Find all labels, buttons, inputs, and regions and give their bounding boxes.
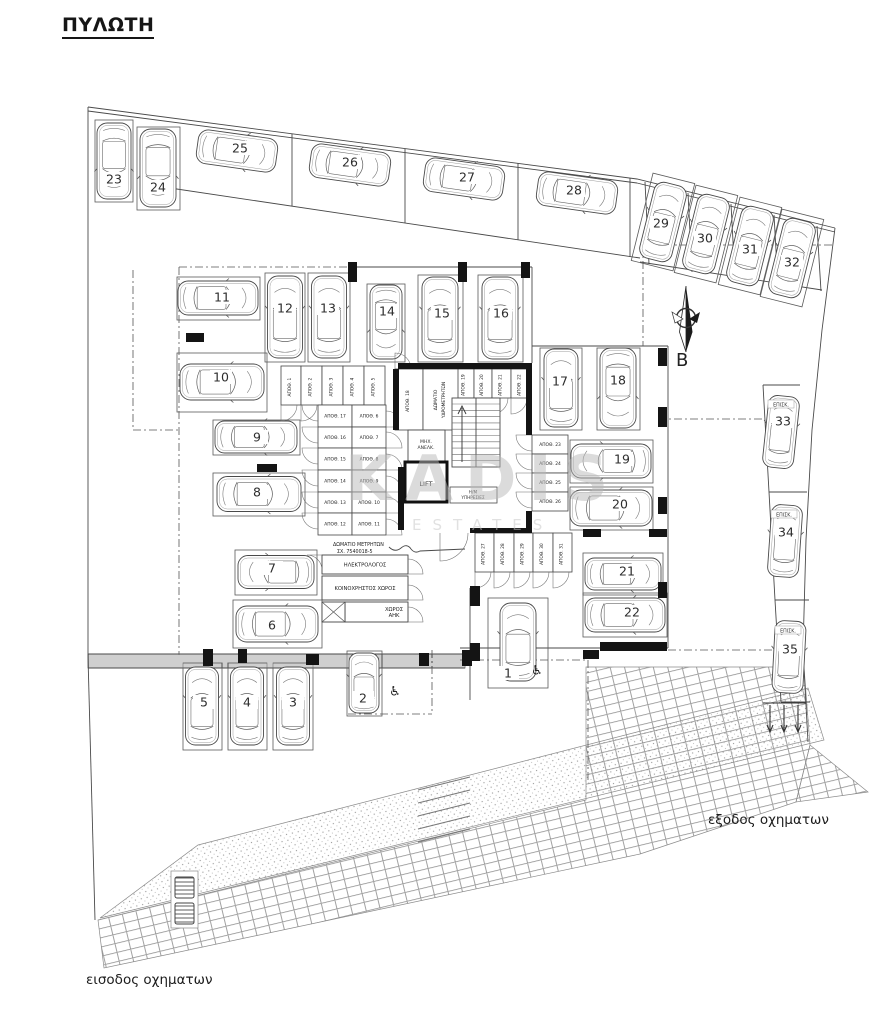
wall-column	[419, 653, 429, 666]
svg-text:ΚΟΙΝΟΧΡΗΣΤΟΣ ΧΩΡΟΣ: ΚΟΙΝΟΧΡΗΣΤΟΣ ΧΩΡΟΣ	[334, 586, 395, 592]
wall-column	[257, 464, 277, 472]
svg-text:1: 1	[504, 665, 512, 680]
svg-text:ΑΠΟΘ. 4: ΑΠΟΘ. 4	[350, 377, 356, 396]
svg-text:ΑΠΟΘ. 26: ΑΠΟΘ. 26	[539, 499, 561, 505]
wall-column	[526, 369, 532, 435]
svg-text:34: 34	[778, 524, 794, 539]
svg-text:6: 6	[268, 617, 276, 632]
svg-text:ΕΠΙΣΚ.: ΕΠΙΣΚ.	[780, 628, 796, 634]
wall-column	[306, 654, 319, 665]
storage-room-9: ΑΠΟΘ. 9	[352, 470, 402, 492]
storage-room-12: ΑΠΟΘ. 12	[302, 513, 352, 535]
svg-text:ΑΠΟΘ. 16: ΑΠΟΘ. 16	[324, 435, 346, 441]
svg-text:18: 18	[610, 372, 626, 387]
plan-drawing: 1♿2♿345678910111213141516171819202122232…	[0, 0, 895, 1024]
svg-text:26: 26	[342, 154, 358, 169]
wall-column	[658, 497, 667, 514]
storage-room-11: ΑΠΟΘ. 11	[352, 513, 402, 535]
wall-column	[600, 642, 667, 651]
wall-column	[649, 529, 667, 537]
wall-column	[470, 528, 532, 533]
svg-text:ΔΩΜΑΤΙΟ ΜΕΤΡΗΤΩΝ: ΔΩΜΑΤΙΟ ΜΕΤΡΗΤΩΝ	[333, 542, 384, 548]
svg-text:3: 3	[289, 694, 297, 709]
svg-text:11: 11	[214, 289, 230, 304]
svg-text:ΣΧ. 7540018-5: ΣΧ. 7540018-5	[337, 549, 373, 555]
svg-text:ΑΠΟΘ. 24: ΑΠΟΘ. 24	[539, 461, 561, 467]
svg-text:ΑΠΟΘ. 29: ΑΠΟΘ. 29	[520, 543, 526, 565]
svg-text:16: 16	[493, 305, 509, 320]
storage-room-14: ΑΠΟΘ. 14	[302, 470, 352, 492]
svg-text:ΑΠΟΘ. 20: ΑΠΟΘ. 20	[479, 374, 485, 396]
svg-text:13: 13	[320, 300, 336, 315]
parking-space-12	[265, 276, 305, 358]
storage-room-10: ΑΠΟΘ. 10	[352, 492, 402, 513]
svg-text:2: 2	[359, 690, 367, 705]
svg-text:ΗΛΕΚΤΡΟΛΟΓΟΣ: ΗΛΕΚΤΡΟΛΟΓΟΣ	[344, 563, 386, 569]
svg-text:ΑΠΟΘ. 6: ΑΠΟΘ. 6	[360, 414, 379, 420]
wall-column	[470, 586, 480, 606]
parking-space-13	[309, 276, 349, 358]
wall-column	[398, 467, 404, 530]
svg-text:ΑΠΟΘ. 8: ΑΠΟΘ. 8	[360, 457, 379, 463]
meter-room-note: ΔΩΜΑΤΙΟ ΜΕΤΡΗΤΩΝΣΧ. 7540018-5	[333, 542, 384, 555]
svg-text:ΑΠΟΘ. 21: ΑΠΟΘ. 21	[498, 374, 504, 396]
svg-text:ΑΠΟΘ. 17: ΑΠΟΘ. 17	[324, 414, 346, 420]
north-arrow-icon	[672, 286, 700, 352]
svg-text:32: 32	[784, 254, 800, 269]
parking-space-18	[598, 348, 639, 428]
wall-column	[458, 262, 467, 282]
svg-text:25: 25	[232, 140, 248, 155]
svg-text:ΑΠΟΘ. 10: ΑΠΟΘ. 10	[358, 500, 380, 506]
storage-room-31: ΑΠΟΘ. 31	[553, 533, 572, 588]
svg-text:ΑΠΟΘ. 14: ΑΠΟΘ. 14	[324, 479, 346, 485]
wall-column	[583, 650, 599, 659]
svg-text:ΑΠΟΘ. 25: ΑΠΟΘ. 25	[539, 480, 561, 486]
svg-text:ΑΠΟΘ. 31: ΑΠΟΘ. 31	[559, 543, 565, 565]
wall-column	[658, 407, 667, 427]
svg-text:ΑΠΟΘ. 15: ΑΠΟΘ. 15	[324, 457, 346, 463]
wall-column	[398, 363, 532, 369]
wall-column	[393, 369, 399, 430]
north-letter: B	[676, 350, 688, 371]
parking-space-14	[368, 285, 405, 359]
svg-text:12: 12	[277, 300, 293, 315]
wall-column	[583, 529, 601, 537]
storage-room-28: ΑΠΟΘ. 28	[494, 533, 514, 588]
svg-text:ΑΠΟΘ. 3: ΑΠΟΘ. 3	[329, 377, 335, 396]
page-title: ΠΥΛΩΤΗ	[62, 14, 154, 39]
svg-text:17: 17	[552, 373, 568, 388]
svg-text:♿: ♿	[389, 685, 401, 700]
svg-text:ΔΩΜΑΤΙΟ: ΔΩΜΑΤΙΟ	[433, 389, 439, 410]
svg-text:14: 14	[379, 303, 395, 318]
storage-room-29: ΑΠΟΘ. 29	[514, 533, 533, 588]
svg-text:ΜΗΧ.: ΜΗΧ.	[420, 439, 432, 445]
parking-space-24	[138, 129, 179, 207]
storage-room-8: ΑΠΟΘ. 8	[352, 448, 402, 470]
svg-text:8: 8	[253, 484, 261, 499]
svg-text:5: 5	[200, 694, 208, 709]
svg-text:ΑΝΕΛΚ.: ΑΝΕΛΚ.	[417, 445, 434, 451]
svg-text:ΑΠΟΘ. 27: ΑΠΟΘ. 27	[481, 543, 487, 565]
svg-text:ΑΠΟΘ. 12: ΑΠΟΘ. 12	[324, 522, 346, 528]
svg-text:Η/Μ: Η/Μ	[469, 490, 478, 495]
svg-text:ΕΠΙΣΚ.: ΕΠΙΣΚ.	[773, 402, 789, 408]
svg-text:ΑΠΟΘ. 28: ΑΠΟΘ. 28	[500, 543, 506, 565]
wall-column	[658, 582, 667, 598]
svg-text:21: 21	[619, 563, 635, 578]
svg-text:30: 30	[697, 230, 713, 245]
wall-column	[186, 333, 204, 342]
svg-text:27: 27	[459, 169, 475, 184]
storage-room-25: ΑΠΟΘ. 25	[516, 473, 568, 492]
svg-text:9: 9	[253, 429, 261, 444]
svg-text:4: 4	[243, 694, 251, 709]
svg-text:♿: ♿	[531, 664, 543, 679]
shaft-xbox	[322, 602, 345, 622]
ahk-room: ΧΩΡΟΣΑΗΚ	[345, 602, 408, 622]
svg-text:ΑΠΟΘ. 18: ΑΠΟΘ. 18	[405, 390, 411, 412]
wall-column	[203, 649, 213, 666]
floor-plan: ΠΥΛΩΤΗ 1♿2♿34567891011121314151617181920…	[0, 0, 895, 1024]
svg-text:ΑΠΟΘ. 13: ΑΠΟΘ. 13	[324, 500, 346, 506]
svg-text:ΑΠΟΘ. 22: ΑΠΟΘ. 22	[517, 374, 523, 396]
svg-text:15: 15	[434, 305, 450, 320]
svg-text:33: 33	[775, 413, 791, 428]
storage-room-30: ΑΠΟΘ. 30	[533, 533, 553, 588]
wall-column	[658, 348, 667, 366]
svg-text:ΑΠΟΘ. 2: ΑΠΟΘ. 2	[308, 377, 314, 396]
svg-text:10: 10	[213, 369, 229, 384]
storage-room-24: ΑΠΟΘ. 24	[516, 454, 568, 473]
storage-room-26: ΑΠΟΘ. 26	[516, 492, 568, 511]
electrical-room: ΗΛΕΚΤΡΟΛΟΓΟΣ	[322, 555, 408, 574]
svg-text:20: 20	[612, 496, 628, 511]
svg-text:LIFT: LIFT	[419, 480, 432, 488]
svg-text:ΑΠΟΘ. 7: ΑΠΟΘ. 7	[360, 435, 379, 441]
wall-column	[238, 649, 247, 663]
svg-text:ΑΠΟΘ. 30: ΑΠΟΘ. 30	[539, 543, 545, 565]
vehicle-entrance-label: εισοδος οχηματων	[86, 972, 213, 988]
svg-text:22: 22	[624, 604, 640, 619]
svg-text:ΑΗΚ: ΑΗΚ	[389, 613, 400, 619]
svg-text:31: 31	[742, 241, 758, 256]
storage-room-1: ΑΠΟΘ. 1	[281, 366, 301, 421]
svg-text:19: 19	[614, 451, 630, 466]
common-area: ΚΟΙΝΟΧΡΗΣΤΟΣ ΧΩΡΟΣ	[322, 576, 408, 600]
storage-room-16: ΑΠΟΘ. 16	[302, 427, 352, 448]
wall-column	[470, 643, 480, 661]
svg-text:35: 35	[782, 641, 798, 656]
svg-text:ΕΠΙΣΚ.: ΕΠΙΣΚ.	[776, 512, 792, 518]
svg-text:ΑΠΟΘ. 5: ΑΠΟΘ. 5	[371, 377, 377, 396]
vehicle-exit-label: εξοδος οχηματων	[708, 812, 829, 828]
storage-room-23: ΑΠΟΘ. 23	[516, 435, 568, 454]
svg-text:ΑΠΟΘ. 19: ΑΠΟΘ. 19	[461, 374, 467, 396]
svg-text:24: 24	[150, 179, 166, 194]
svg-text:28: 28	[566, 182, 582, 197]
svg-text:ΑΠΟΘ. 9: ΑΠΟΘ. 9	[360, 479, 379, 485]
storage-room-7: ΑΠΟΘ. 7	[352, 427, 402, 448]
wall-column	[521, 262, 530, 278]
svg-text:23: 23	[106, 171, 122, 186]
svg-text:ΥΔΡΟΜΕΤΡΗΤΩΝ: ΥΔΡΟΜΕΤΡΗΤΩΝ	[441, 382, 447, 419]
svg-text:ΑΠΟΘ. 1: ΑΠΟΘ. 1	[287, 377, 293, 396]
svg-text:ΑΠΟΘ. 23: ΑΠΟΘ. 23	[539, 442, 561, 448]
svg-text:ΑΠΟΘ. 11: ΑΠΟΘ. 11	[358, 522, 380, 528]
svg-text:ΥΠΗΡΕΣΙΕΣ: ΥΠΗΡΕΣΙΕΣ	[460, 495, 485, 500]
storage-room-17: ΑΠΟΘ. 17	[302, 405, 352, 427]
parking-space-23	[95, 123, 134, 199]
svg-text:7: 7	[268, 560, 276, 575]
storage-room-27: ΑΠΟΘ. 27	[475, 533, 494, 588]
storage-room-15: ΑΠΟΘ. 15	[302, 448, 352, 470]
storage-room-13: ΑΠΟΘ. 13	[302, 492, 352, 513]
svg-text:29: 29	[653, 215, 669, 230]
wall-column	[348, 262, 357, 282]
